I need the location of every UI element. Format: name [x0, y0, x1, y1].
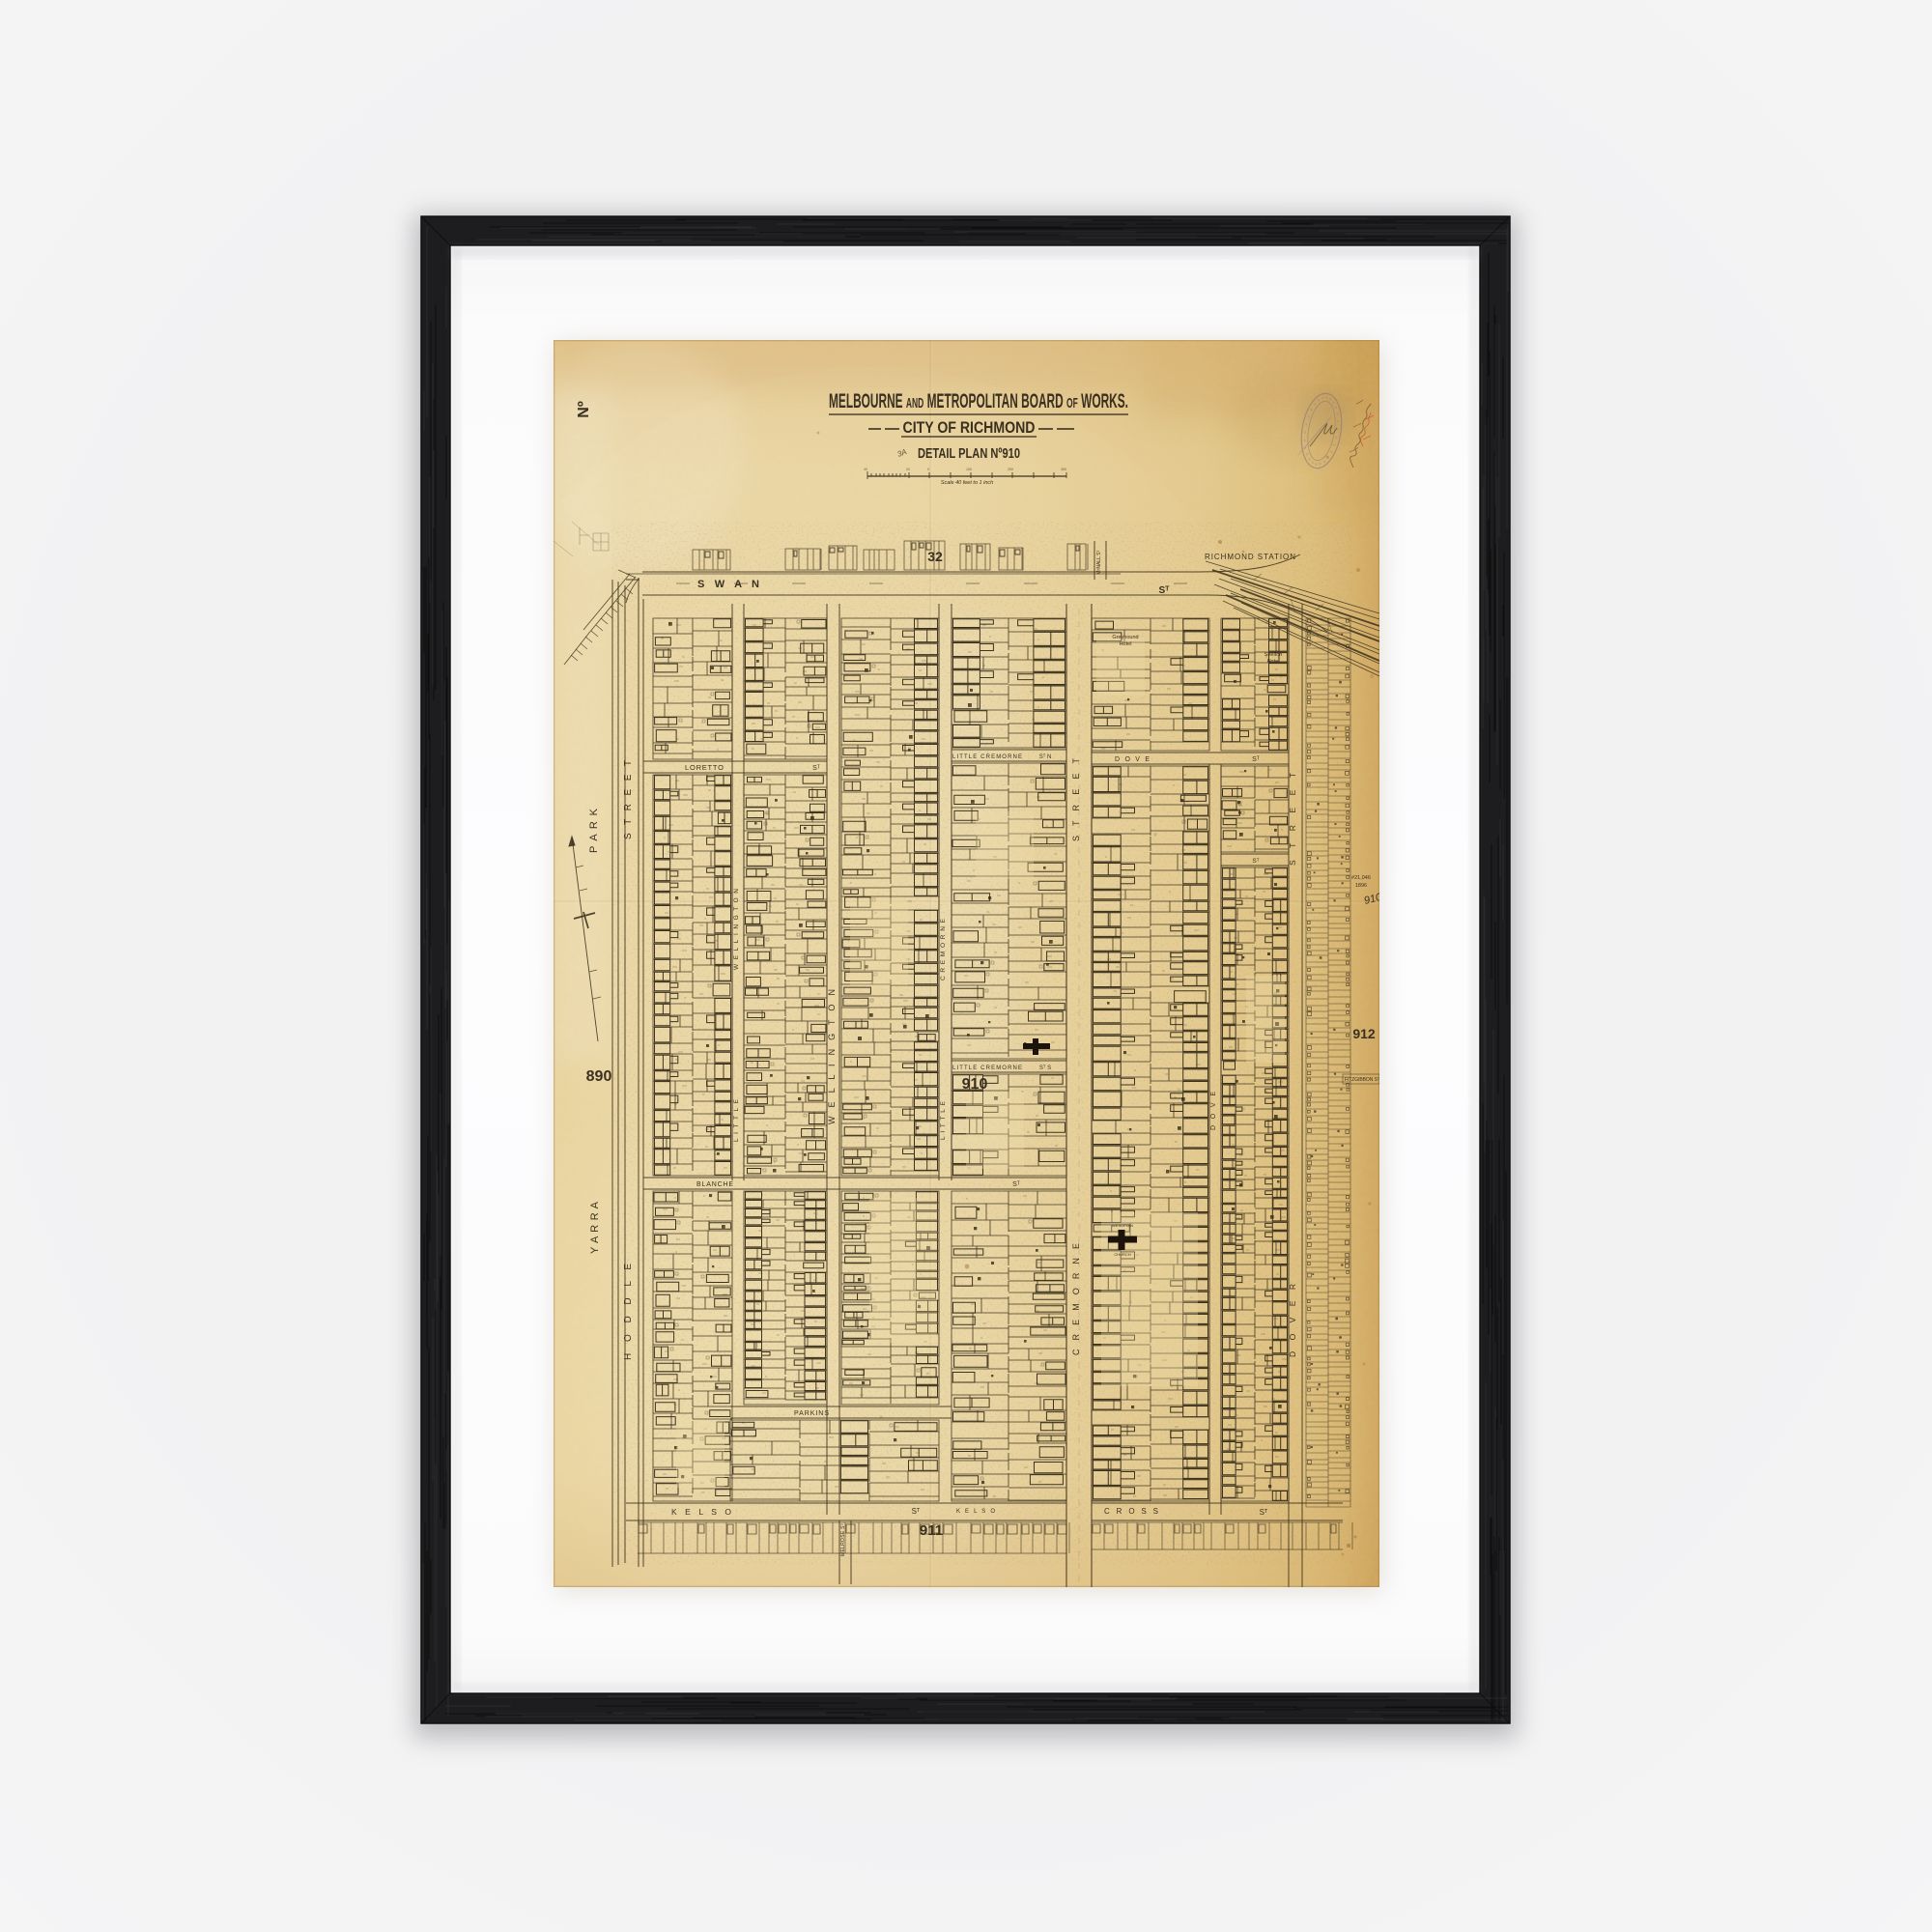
svg-text:Sᵀ: Sᵀ	[812, 765, 820, 772]
svg-text:0: 0	[927, 468, 929, 471]
svg-text:Sᵀ: Sᵀ	[1012, 1181, 1020, 1188]
svg-text:LITTLE CREMORNE: LITTLE CREMORNE	[952, 754, 1022, 760]
svg-text:P A R K: P A R K	[588, 808, 600, 853]
svg-text:DETAIL PLAN Nº910: DETAIL PLAN Nº910	[918, 445, 1020, 462]
svg-text:Sᵀ: Sᵀ	[1252, 858, 1259, 865]
svg-text:Sᵀ: Sᵀ	[1260, 1508, 1268, 1517]
svg-text:300: 300	[1061, 468, 1066, 471]
svg-text:WESLEYAN: WESLEYAN	[1112, 1223, 1133, 1228]
svg-text:RICHMOND STATION: RICHMOND STATION	[1205, 553, 1295, 561]
svg-text:40: 40	[864, 468, 867, 471]
svg-text:100: 100	[966, 468, 972, 471]
svg-text:Nº: Nº	[576, 401, 592, 418]
svg-text:Hotel: Hotel	[1120, 641, 1132, 647]
svg-text:20: 20	[906, 468, 910, 471]
svg-text:CHURCH: CHURCH	[1114, 1252, 1130, 1257]
svg-text:910: 910	[962, 1076, 988, 1093]
svg-text:MELROSE Sᵀ: MELROSE Sᵀ	[840, 1522, 846, 1556]
svg-text:BLANCHE: BLANCHE	[696, 1181, 733, 1188]
svg-text:C R O S S: C R O S S	[1104, 1507, 1158, 1516]
svg-text:Sᵀ: Sᵀ	[1252, 756, 1260, 763]
svg-text:200: 200	[1008, 468, 1013, 471]
svg-text:Scale 40 feet to 1 inch: Scale 40 feet to 1 inch	[941, 480, 993, 486]
svg-text:890: 890	[586, 1068, 612, 1085]
svg-text:Hotel: Hotel	[1267, 659, 1280, 665]
svg-text:Sᵀ: Sᵀ	[1158, 585, 1170, 596]
svg-text:912: 912	[1352, 1026, 1376, 1041]
svg-text:1896: 1896	[1355, 883, 1367, 889]
svg-text:CITY OF RICHMOND: CITY OF RICHMOND	[903, 419, 1036, 437]
svg-text:32: 32	[927, 549, 943, 564]
svg-text:D O V E R: D O V E R	[1288, 1284, 1297, 1357]
svg-text:Sᵀ N: Sᵀ N	[1039, 753, 1052, 760]
svg-text:Y A R R A: Y A R R A	[589, 1201, 601, 1254]
svg-text:FITZGIBBON Sᵀ: FITZGIBBON Sᵀ	[1345, 1077, 1380, 1083]
svg-text:MELBOURNE AND METROPOLITAN BOA: MELBOURNE AND METROPOLITAN BOARD OF WORK…	[829, 390, 1128, 412]
svg-text:LORETTO: LORETTO	[685, 763, 724, 772]
svg-text:Greyhound: Greyhound	[1112, 635, 1138, 640]
svg-text:C R E M O R N E: C R E M O R N E	[1071, 1243, 1081, 1355]
svg-text:WELLINGTON: WELLINGTON	[733, 889, 740, 970]
svg-text:LITTLE CREMORNE: LITTLE CREMORNE	[952, 1065, 1022, 1071]
svg-text:911: 911	[920, 1522, 943, 1539]
svg-text:Sᵀ S: Sᵀ S	[1039, 1065, 1051, 1071]
svg-text:Sᵀ: Sᵀ	[912, 1507, 921, 1516]
svg-text:#21,046: #21,046	[1351, 875, 1371, 881]
svg-text:Shelton: Shelton	[1264, 652, 1283, 658]
svg-text:PARKINS: PARKINS	[794, 1410, 829, 1417]
svg-text:MᶜNALL Sᵀ: MᶜNALL Sᵀ	[1096, 550, 1102, 575]
